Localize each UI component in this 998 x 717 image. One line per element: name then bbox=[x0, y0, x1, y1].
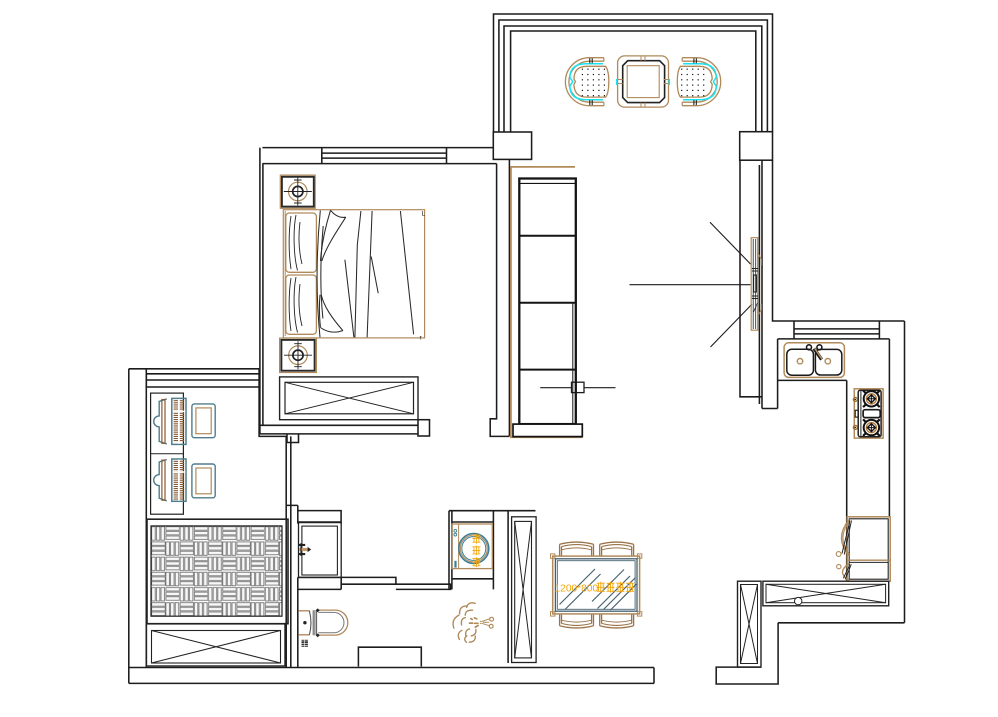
svg-text:1200*800: 1200*800 bbox=[555, 584, 599, 595]
svg-text:L: L bbox=[422, 211, 426, 218]
